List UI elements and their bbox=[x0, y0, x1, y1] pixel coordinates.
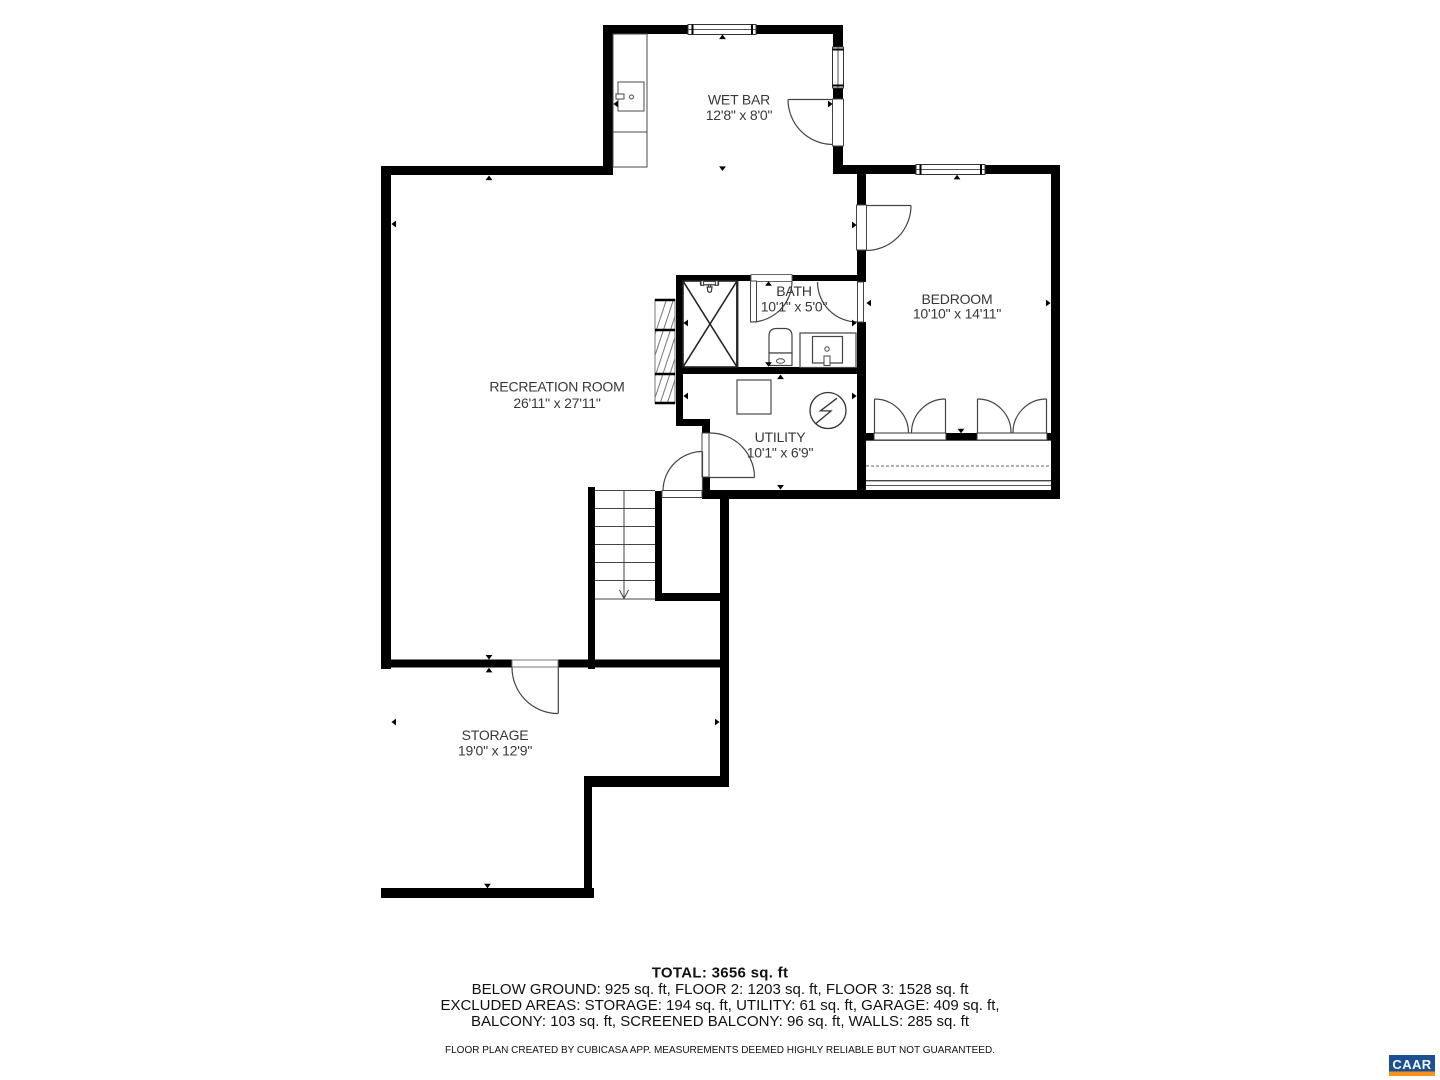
svg-text:BALCONY: 103 sq. ft, SCREENED: BALCONY: 103 sq. ft, SCREENED BALCONY: 9… bbox=[471, 1013, 970, 1030]
svg-text:12'8" x 8'0": 12'8" x 8'0" bbox=[706, 107, 773, 123]
svg-text:10'1" x 5'0": 10'1" x 5'0" bbox=[761, 298, 828, 314]
svg-text:TOTAL: 3656 sq. ft: TOTAL: 3656 sq. ft bbox=[652, 965, 789, 982]
svg-text:STORAGE: STORAGE bbox=[462, 727, 529, 743]
svg-text:FLOOR PLAN CREATED BY CUBICASA: FLOOR PLAN CREATED BY CUBICASA APP. MEAS… bbox=[445, 1045, 995, 1056]
svg-text:WET BAR: WET BAR bbox=[708, 91, 770, 107]
svg-text:19'0" x 12'9": 19'0" x 12'9" bbox=[458, 743, 532, 759]
svg-text:10'10" x 14'11": 10'10" x 14'11" bbox=[913, 306, 1002, 322]
svg-text:BEDROOM: BEDROOM bbox=[922, 291, 993, 307]
svg-text:CAAR: CAAR bbox=[1392, 1057, 1431, 1072]
svg-text:EXCLUDED AREAS: STORAGE: 194 s: EXCLUDED AREAS: STORAGE: 194 sq. ft, UTI… bbox=[440, 997, 999, 1014]
svg-text:UTILITY: UTILITY bbox=[755, 429, 807, 445]
svg-text:26'11" x 27'11": 26'11" x 27'11" bbox=[513, 395, 601, 411]
svg-text:BATH: BATH bbox=[776, 283, 812, 299]
svg-text:RECREATION ROOM: RECREATION ROOM bbox=[489, 378, 624, 394]
svg-text:BELOW GROUND: 925 sq. ft, FLOO: BELOW GROUND: 925 sq. ft, FLOOR 2: 1203 … bbox=[472, 981, 970, 998]
svg-text:10'1" x 6'9": 10'1" x 6'9" bbox=[747, 445, 814, 461]
